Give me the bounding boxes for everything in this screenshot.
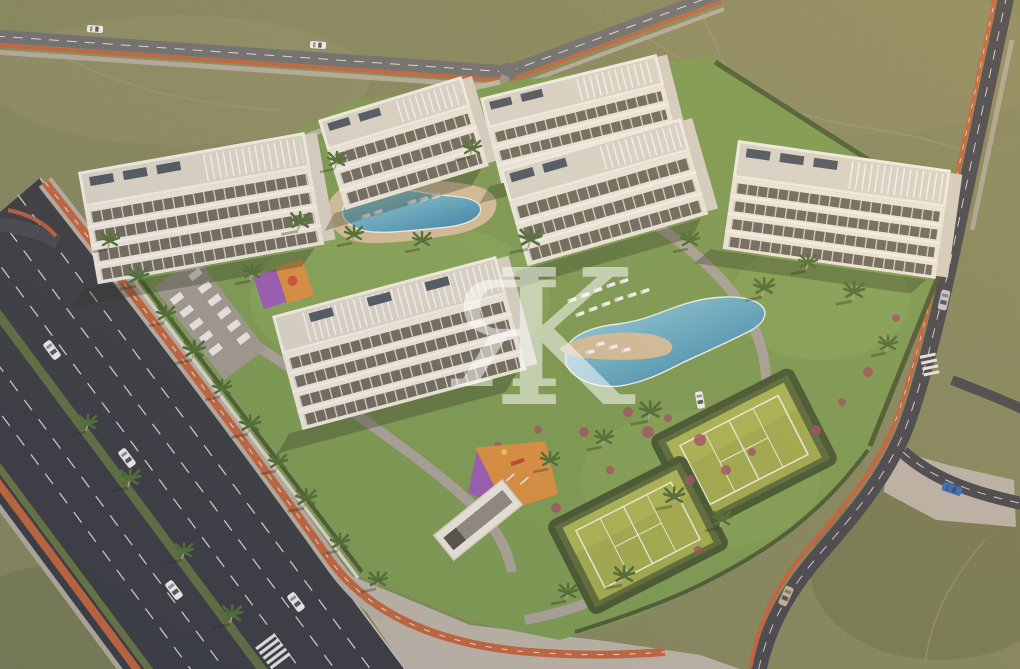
aerial-render-image: Я K: [0, 0, 1020, 669]
watermark-monogram: Я K: [446, 230, 636, 449]
watermark-k: K: [492, 230, 636, 449]
residential-complex-site-plan: Я K: [0, 0, 1020, 669]
